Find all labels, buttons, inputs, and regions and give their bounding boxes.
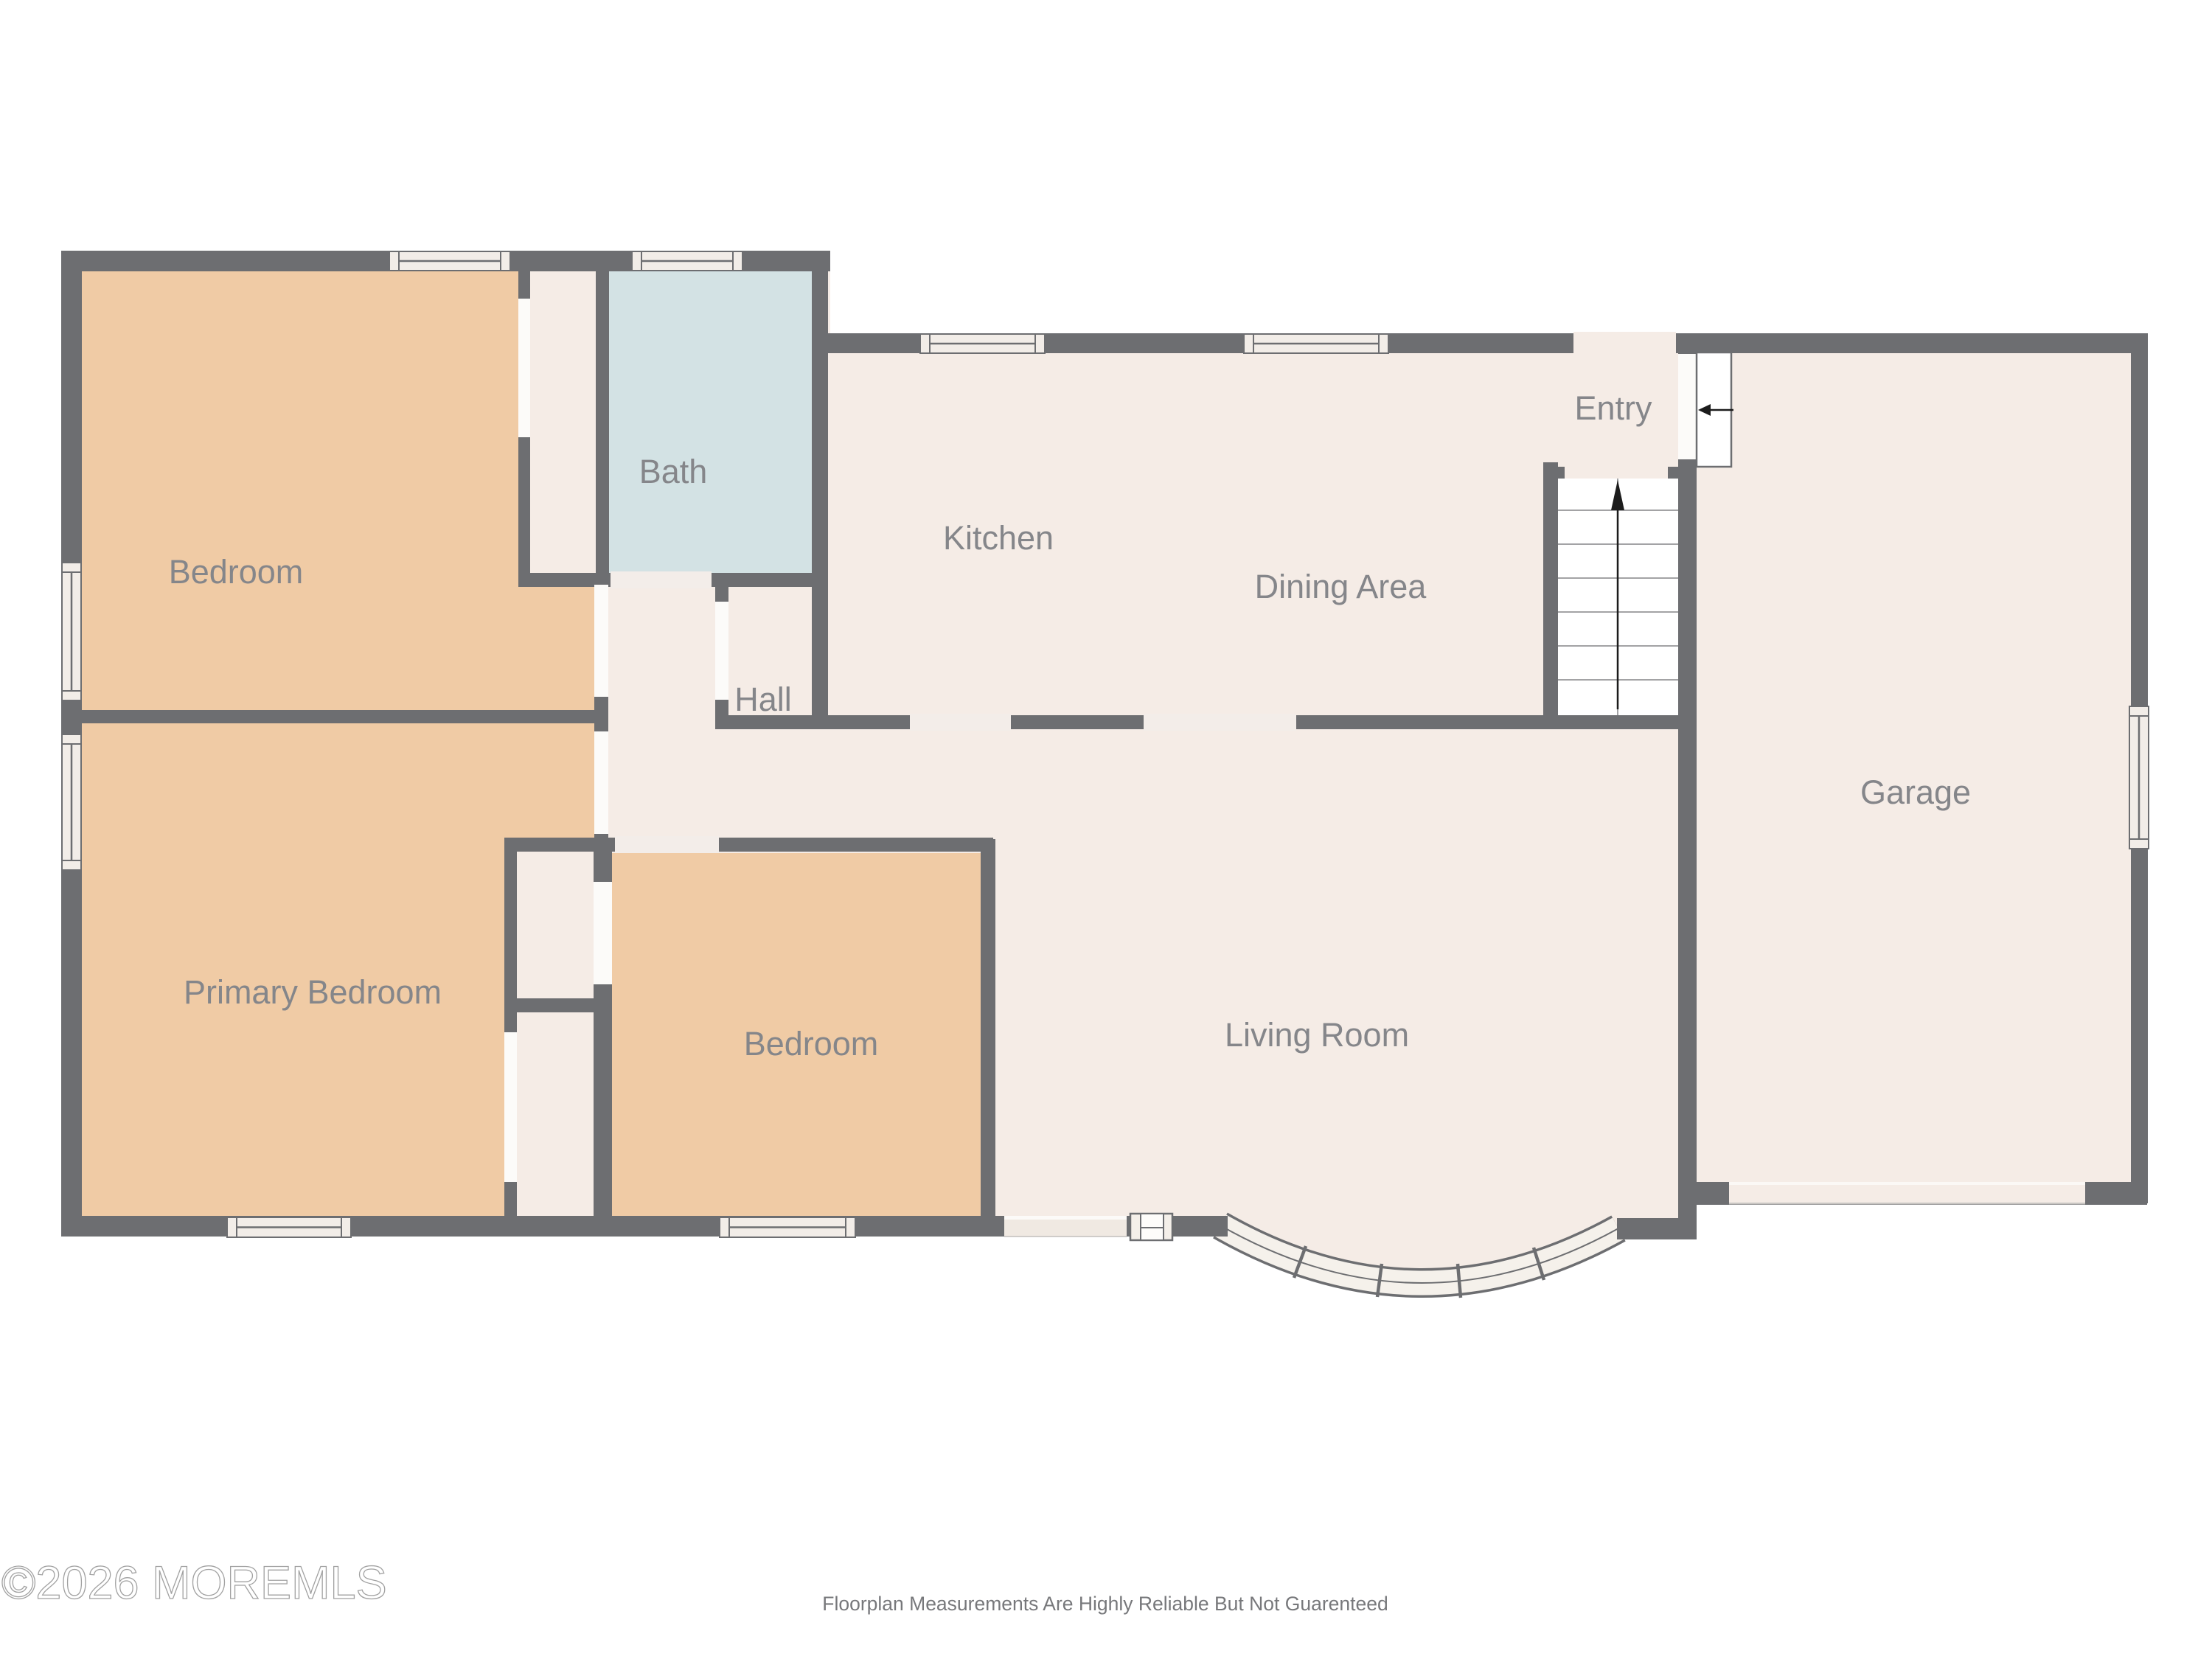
svg-text:Bedroom: Bedroom — [169, 553, 304, 591]
svg-text:Entry: Entry — [1574, 389, 1652, 427]
svg-text:Floorplan Measurements Are Hig: Floorplan Measurements Are Highly Reliab… — [822, 1593, 1388, 1615]
svg-text:Primary Bedroom: Primary Bedroom — [184, 973, 442, 1011]
svg-text:Hall: Hall — [734, 681, 792, 718]
svg-text:Bath: Bath — [639, 453, 708, 490]
svg-text:Garage: Garage — [1860, 773, 1971, 811]
svg-text:©2026 MOREMLS: ©2026 MOREMLS — [1, 1557, 387, 1609]
svg-text:Living Room: Living Room — [1225, 1016, 1409, 1054]
svg-text:Bedroom: Bedroom — [744, 1025, 879, 1062]
svg-text:Kitchen: Kitchen — [943, 519, 1054, 557]
svg-text:Dining Area: Dining Area — [1255, 568, 1427, 605]
